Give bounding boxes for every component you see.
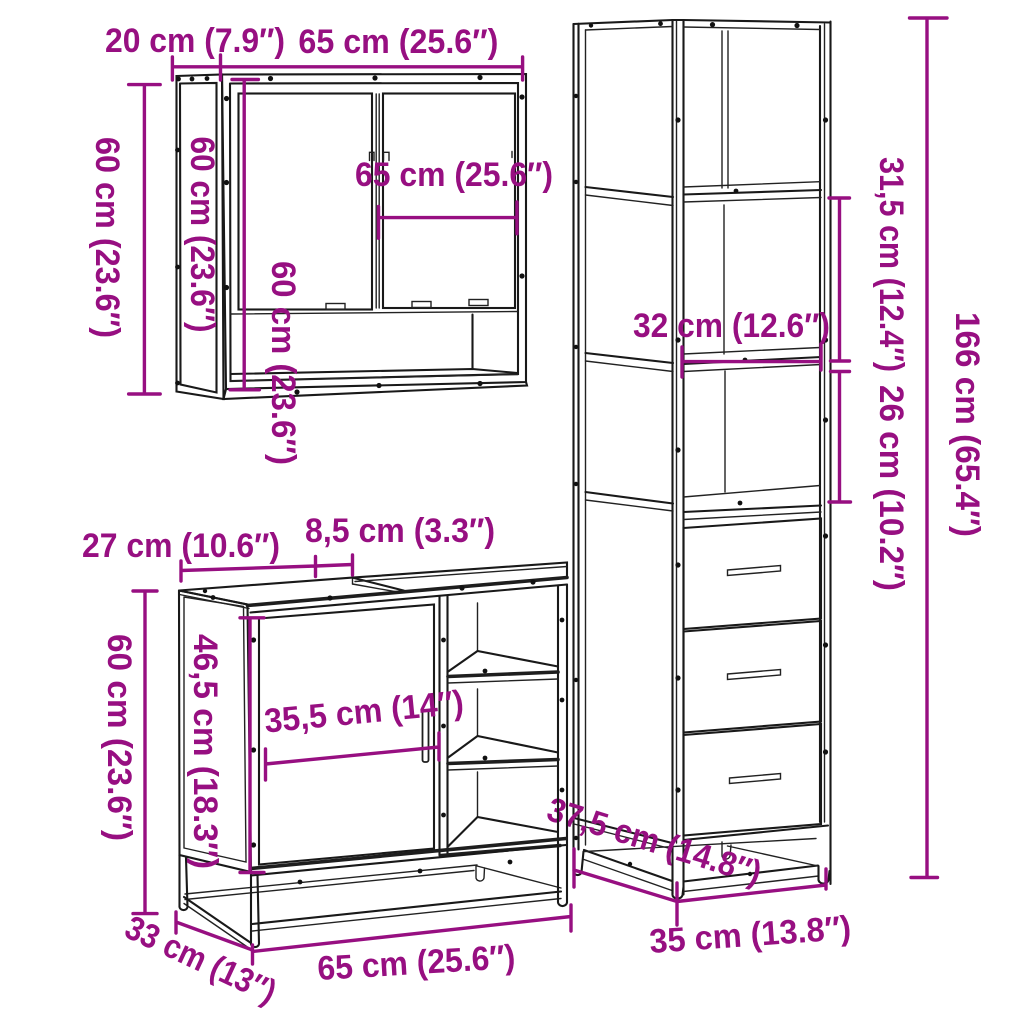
svg-text:60 cm (23.6″): 60 cm (23.6″) xyxy=(264,261,302,465)
svg-text:60 cm (23.6″): 60 cm (23.6″) xyxy=(183,137,221,333)
svg-text:27 cm (10.6″): 27 cm (10.6″) xyxy=(82,527,280,565)
svg-text:26 cm (10.2″): 26 cm (10.2″) xyxy=(872,385,910,591)
svg-text:60 cm (23.6″): 60 cm (23.6″) xyxy=(88,137,126,338)
svg-text:46,5 cm (18.3″): 46,5 cm (18.3″) xyxy=(186,634,224,869)
svg-text:31,5 cm (12.4″): 31,5 cm (12.4″) xyxy=(872,157,910,372)
svg-text:8,5 cm (3.3″): 8,5 cm (3.3″) xyxy=(305,512,495,550)
svg-text:60 cm (23.6″): 60 cm (23.6″) xyxy=(100,634,138,841)
svg-text:65 cm (25.6″): 65 cm (25.6″) xyxy=(298,23,498,61)
svg-text:166 cm (65.4″): 166 cm (65.4″) xyxy=(948,312,986,537)
svg-text:65 cm (25.6″): 65 cm (25.6″) xyxy=(355,156,553,194)
svg-text:32 cm (12.6″): 32 cm (12.6″) xyxy=(633,307,830,345)
svg-text:20 cm (7.9″): 20 cm (7.9″) xyxy=(105,22,285,60)
